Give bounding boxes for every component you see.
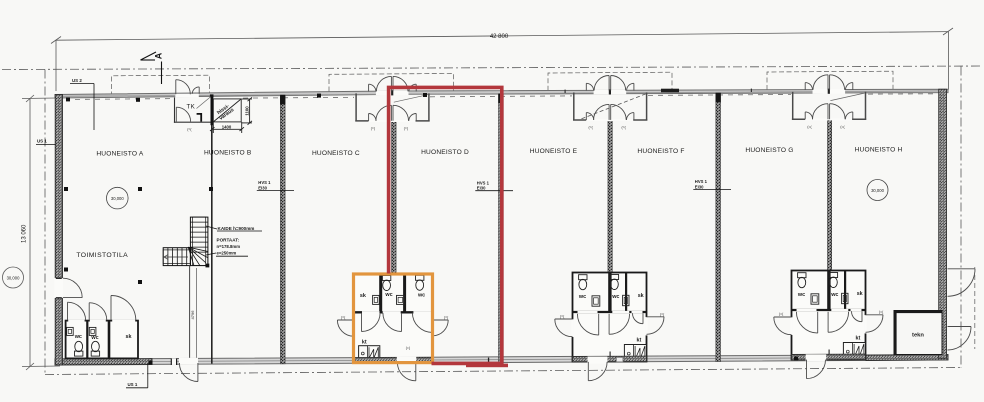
svg-text:kt: kt (637, 338, 642, 344)
svg-text:wc: wc (90, 335, 98, 341)
svg-text:KAIDE h=900mm: KAIDE h=900mm (218, 226, 255, 231)
svg-text:sk: sk (360, 293, 366, 299)
svg-text:wc: wc (611, 294, 619, 300)
svg-text:US 1: US 1 (37, 139, 47, 144)
svg-text:EI30: EI30 (477, 186, 486, 191)
svg-text:sk: sk (126, 334, 132, 340)
svg-text:HUONEISTO E: HUONEISTO E (530, 148, 578, 155)
svg-text:wc: wc (830, 292, 838, 298)
svg-text:HUONEISTO B: HUONEISTO B (204, 150, 252, 157)
svg-text:kt: kt (856, 336, 861, 342)
svg-text:wc: wc (74, 334, 82, 340)
svg-text:HUONEISTO D: HUONEISTO D (421, 149, 469, 156)
svg-text:e=250mm: e=250mm (217, 251, 237, 256)
svg-text:1400: 1400 (222, 124, 232, 129)
svg-text:1100: 1100 (244, 106, 249, 116)
svg-text:US 1: US 1 (128, 382, 138, 387)
svg-text:HUONEISTO A: HUONEISTO A (96, 150, 144, 157)
svg-text:wc: wc (578, 294, 586, 300)
svg-text:30,000: 30,000 (871, 188, 884, 193)
svg-text:HUONEISTO G: HUONEISTO G (745, 147, 793, 154)
svg-text:US 2: US 2 (72, 78, 82, 83)
svg-text:PORTAAT:: PORTAAT: (217, 238, 240, 243)
svg-text:13 060: 13 060 (22, 224, 28, 243)
svg-text:HUONEISTO H: HUONEISTO H (855, 147, 903, 154)
svg-text:n=178.8mm: n=178.8mm (217, 244, 241, 249)
svg-text:EI30: EI30 (258, 185, 267, 190)
svg-text:TOIMISTOTILA: TOIMISTOTILA (76, 252, 128, 259)
svg-text:30,000: 30,000 (111, 196, 124, 201)
svg-text:42 800: 42 800 (490, 34, 509, 40)
svg-text:30,000: 30,000 (7, 276, 20, 281)
svg-text:wc: wc (797, 292, 805, 298)
svg-text:tekn: tekn (912, 333, 924, 339)
svg-text:A: A (154, 52, 164, 59)
svg-text:kt: kt (362, 339, 367, 345)
svg-text:wc: wc (384, 292, 392, 298)
svg-text:HUONEISTO C: HUONEISTO C (312, 150, 360, 157)
svg-text:HUONEISTO F: HUONEISTO F (637, 148, 684, 155)
svg-text:sk: sk (638, 293, 644, 299)
svg-text:wc: wc (417, 293, 425, 299)
svg-text:sk: sk (857, 291, 863, 297)
svg-text:EI30: EI30 (695, 184, 704, 189)
svg-text:TK: TK (187, 104, 196, 111)
svg-text:4796: 4796 (190, 310, 195, 320)
